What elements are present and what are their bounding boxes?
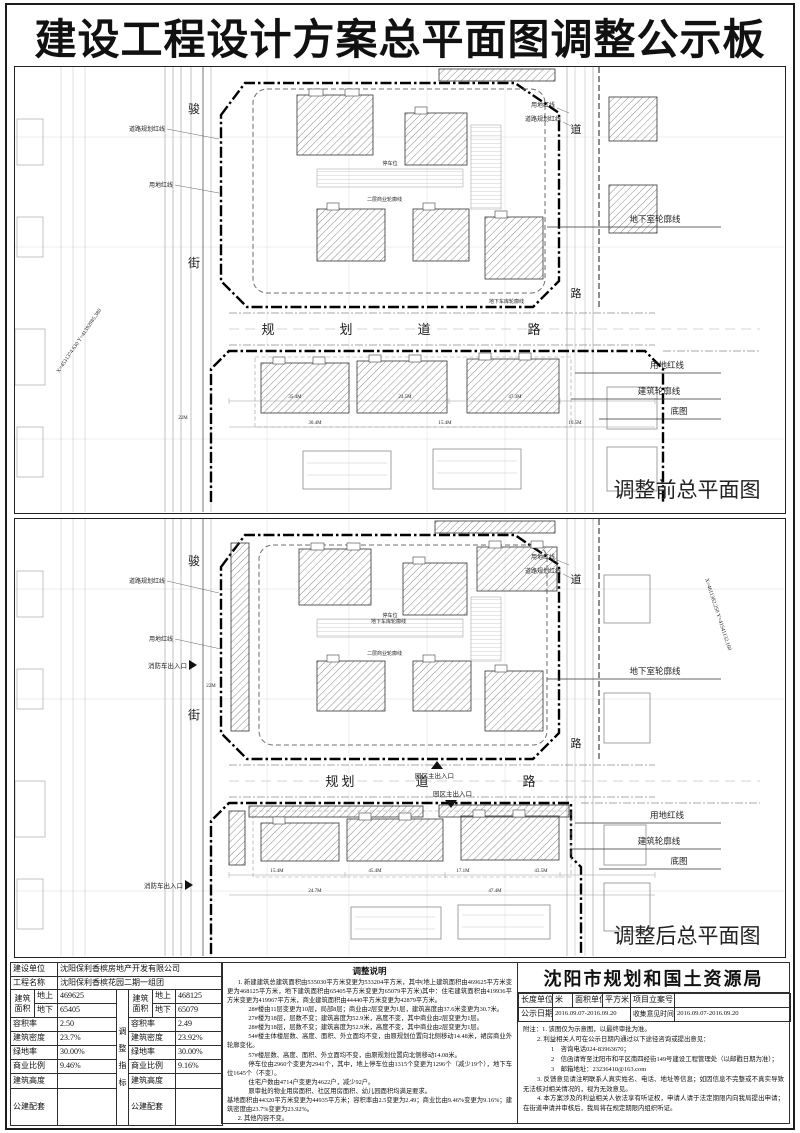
bureau-block: 沈阳市规划和国土资源局 长度单位 米 面积单位 平方米 项目立案号 公示日期 2… <box>517 962 790 1124</box>
orig-public-value <box>58 1089 117 1126</box>
basemap-callout: 底图 <box>670 406 687 416</box>
adjustment-line: 54#楼主体楼层数、高度、面积、外立面均不变，由原规划位置向北侧移动14.48米… <box>227 1032 512 1050</box>
adj-height-value <box>176 1074 223 1089</box>
svg-text:15.4M: 15.4M <box>438 421 452 426</box>
fire-exit-arrow-icon <box>189 660 197 670</box>
adj-biz-label: 商业比例 <box>129 1060 176 1074</box>
adj-density-value: 23.92% <box>176 1032 223 1046</box>
land-redline-label: 用地红线 <box>149 635 173 643</box>
adjustment-line: 27#楼为18层，层数不变；建筑高度为52.9米，高度不变，其中商业由2层变更为… <box>227 1014 512 1023</box>
basemap-callout: 底图 <box>670 856 687 866</box>
legend-callouts: 地下室轮廓线 用地红线 建筑轮廓线 底图 <box>547 214 721 419</box>
orig-density-value: 23.7% <box>58 1032 117 1046</box>
collect-date-label: 收集意见时间 <box>631 1008 675 1022</box>
area-unit-label: 面积单位 <box>573 994 603 1008</box>
street-name-left-top: 骏 <box>188 554 200 568</box>
existing-building-detail-lines <box>307 461 517 475</box>
svg-text:22M: 22M <box>206 684 216 689</box>
svg-text:10.5M: 10.5M <box>568 421 582 426</box>
fire-exit-label: 消防车出入口 <box>144 881 183 890</box>
adj-area-above-value: 468125 <box>176 990 223 1004</box>
site-plan-after: 骏 街 道 路 规 划 道 路 <box>15 519 784 956</box>
west-neighbor-buildings <box>15 571 45 929</box>
redline-callout-left: 道路规划红线 用地红线 <box>129 125 219 193</box>
parking-label: 停车位 <box>382 612 397 619</box>
svg-text:15.4M: 15.4M <box>270 869 284 874</box>
site-plan-before: 骏 街 道 路 规 划 道 路 <box>15 67 784 512</box>
street-name-right-bottom: 路 <box>571 287 582 300</box>
road-redlines <box>229 765 760 803</box>
adj-area-label: 建筑 面积 <box>129 990 153 1018</box>
road-name-char: 道 <box>417 322 430 337</box>
orig-far-value: 2.50 <box>58 1018 117 1032</box>
owner-label: 建设单位 <box>11 963 58 977</box>
orig-area-below-value: 65405 <box>58 1004 117 1018</box>
basement-outline-callout: 地下室轮廓线 <box>629 666 681 676</box>
svg-text:30.4M: 30.4M <box>308 421 322 426</box>
redline-callout-topright: 用地红线 道路规划红线 <box>525 101 577 129</box>
map-caption-before: 调整前总平面图 <box>614 478 761 502</box>
owner-value: 沈阳保利香槟房地产开发有限公司 <box>58 963 223 977</box>
length-unit-value: 米 <box>553 994 573 1008</box>
road-redline-label: 道路规划红线 <box>525 567 561 575</box>
orig-below-label: 地下 <box>35 1004 58 1018</box>
survey-grid <box>15 67 784 512</box>
street-name-right-top: 道 <box>571 572 582 586</box>
adj-density-label: 建筑密度 <box>129 1032 176 1046</box>
svg-text:35.4M: 35.4M <box>288 395 302 400</box>
adj-biz-value: 9.16% <box>176 1060 223 1074</box>
adjustment-line: 28#楼由11层变更为10层，局部8层；商业由2层变更为1层，建筑高度由37.6… <box>227 1005 512 1014</box>
basement-outline-callout: 地下室轮廓线 <box>629 214 681 224</box>
info-section: 建设单位 沈阳保利香槟房地产开发有限公司 工程名称 沈阳保利香槟花园二期一组团 … <box>10 962 790 1124</box>
orig-public-label: 公建配套 <box>11 1089 58 1126</box>
project-value: 沈阳保利香槟花园二期一组团 <box>58 977 223 990</box>
garage-outline-label: 地下车库轮廓线 <box>489 298 524 305</box>
dimension-lines <box>229 872 655 895</box>
road-name-char: 划 <box>341 774 354 789</box>
orig-area-label: 建筑 面积 <box>11 990 35 1018</box>
project-label: 工程名称 <box>11 977 58 990</box>
orig-area-above-value: 469625 <box>58 990 117 1004</box>
road-name-char: 路 <box>527 322 540 337</box>
svg-text:17.1M: 17.1M <box>456 869 470 874</box>
road-redline-label: 道路规划红线 <box>129 125 165 133</box>
road-name-char: 路 <box>522 774 535 789</box>
west-street-lines <box>61 67 211 512</box>
adjustment-notes-block: 调整说明 1. 新建建筑总建筑面积由535030平方米变更为533204平方米，… <box>221 962 518 1124</box>
bureau-notes: 附注：1. 该图仅为示意图，以最终审批为准。 2. 利益相关人可在公示日期内通过… <box>518 1022 789 1117</box>
orig-height-value <box>58 1074 117 1089</box>
adj-public-label: 公建配套 <box>129 1089 176 1126</box>
adjust-indicator-divider: 调 整 指 标 <box>117 990 129 1126</box>
legend-callouts: 地下室轮廓线 用地红线 建筑轮廓线 底图 <box>547 666 721 869</box>
adj-green-label: 绿地率 <box>129 1046 176 1060</box>
bureau-note-line: 4. 本方案涉及的利益相关人依法享有听证权，申请人请于法定期限内向我局提出申请；… <box>523 1094 784 1114</box>
bureau-note-line: 3. 反馈意见请注明联系人真实姓名、电话、地址等信息；如因信息不完整或不真实导致… <box>523 1075 784 1095</box>
land-redline-callout: 用地红线 <box>650 360 685 370</box>
length-unit-label: 长度单位 <box>519 994 553 1008</box>
road-redline-label: 道路规划红线 <box>525 115 561 123</box>
adj-public-value <box>176 1089 223 1126</box>
main-entrance-label: 园区主出入口 <box>433 789 472 798</box>
road-name-char: 规 <box>325 774 338 789</box>
bureau-meta-table: 长度单位 米 面积单位 平方米 项目立案号 公示日期 2016.09.07-20… <box>518 993 791 1022</box>
road-name-char: 规 <box>261 322 274 337</box>
bureau-name: 沈阳市规划和国土资源局 <box>518 963 789 993</box>
bureau-note-line: 3 邮箱地址：23236410@163.com <box>523 1065 784 1075</box>
adjustment-line: 28#楼为18层，层数不变；建筑高度为52.9米，高度不变，其中商业由2层变更为… <box>227 1023 512 1032</box>
orig-above-label: 地上 <box>35 990 58 1004</box>
orig-height-label: 建筑高度 <box>11 1074 58 1089</box>
svg-text:43.5M: 43.5M <box>534 869 548 874</box>
orig-density-label: 建筑密度 <box>11 1032 58 1046</box>
bureau-note-line: 1 咨询电话024-83963670； <box>523 1045 784 1055</box>
street-name-left-top: 骏 <box>188 102 200 116</box>
coordinate-label: X=4531374.630 Y=41392985.380 <box>56 308 104 374</box>
adjustment-line: 2. 其他内容不变。 <box>227 1114 512 1123</box>
biz-outline-label: 二层商业轮廓线 <box>367 650 402 657</box>
publish-date-value: 2016.09.07-2016.09.20 <box>553 1008 631 1022</box>
street-name-right-bottom: 路 <box>571 737 582 750</box>
indicator-table: 建设单位 沈阳保利香槟房地产开发有限公司 工程名称 沈阳保利香槟花园二期一组团 … <box>10 962 223 1126</box>
bureau-note-line: 2. 利益相关人可在公示日期内通过以下途径咨询或提出意见： <box>523 1035 784 1045</box>
orig-far-label: 容积率 <box>11 1018 58 1032</box>
street-name-left-bottom: 街 <box>188 256 200 270</box>
notice-board-sheet: 建设工程设计方案总平面图调整公示板 <box>0 0 800 1133</box>
bureau-note-line: 附注：1. 该图仅为示意图，以最终审批为准。 <box>523 1025 784 1035</box>
street-name-left-bottom: 街 <box>188 708 200 722</box>
case-number-value <box>675 994 791 1008</box>
adjustment-line: 住宅户数由4714户变更为4622户，减少92户。 <box>227 1078 512 1087</box>
fire-exit-arrow-icon <box>185 880 193 890</box>
road-redlines <box>229 313 760 351</box>
parking-label: 停车位 <box>382 160 397 167</box>
adj-below-label: 地下 <box>153 1004 176 1018</box>
map-panel-before: 骏 街 道 路 规 划 道 路 <box>14 66 786 514</box>
street-name-right-top: 道 <box>571 122 582 136</box>
orig-biz-value: 9.46% <box>58 1060 117 1074</box>
fire-exit-label: 消防车出入口 <box>148 661 187 670</box>
adjustment-line: 基地面积由44320平方米变更为44935平方米；容积率由2.5变更为2.49；… <box>227 1096 512 1114</box>
adj-far-label: 容积率 <box>129 1018 176 1032</box>
map-panel-after: 骏 街 道 路 规 划 道 路 <box>14 518 786 958</box>
adj-height-label: 建筑高度 <box>129 1074 176 1089</box>
svg-text:24.5M: 24.5M <box>398 395 412 400</box>
land-redline-label: 用地红线 <box>149 181 173 189</box>
biz-outline-label: 二层商业轮廓线 <box>367 196 402 203</box>
land-redline-label: 用地红线 <box>531 101 555 109</box>
collect-date-value: 2016.09.07-2016.09.20 <box>675 1008 791 1022</box>
road-name-char: 划 <box>339 322 352 337</box>
svg-text:22M: 22M <box>178 416 188 421</box>
svg-text:47.3M: 47.3M <box>508 395 522 400</box>
case-number-label: 项目立案号 <box>631 994 675 1008</box>
existing-building-detail-lines <box>355 915 544 929</box>
road-redline-label: 道路规划红线 <box>129 577 165 585</box>
area-unit-value: 平方米 <box>603 994 631 1008</box>
adjustment-line: 1. 新建建筑总建筑面积由535030平方米变更为533204平方米，其中(地上… <box>227 978 512 1005</box>
west-neighbor-buildings <box>15 119 45 477</box>
adj-green-value: 30.00% <box>176 1046 223 1060</box>
svg-text:47.4M: 47.4M <box>488 889 502 894</box>
adj-area-below-value: 65079 <box>176 1004 223 1018</box>
adjustment-line: 停车位由2960个变更为2941个，其中，地上停车位由1315个变更为1296个… <box>227 1060 512 1078</box>
orig-green-value: 30.00% <box>58 1046 117 1060</box>
adj-above-label: 地上 <box>153 990 176 1004</box>
page-title: 建设工程设计方案总平面图调整公示板 <box>0 6 800 67</box>
orig-green-label: 绿地率 <box>11 1046 58 1060</box>
adjustment-line: 57#楼层数、高度、面积、外立面均不变，由原规划位置向北侧移动14.08米。 <box>227 1051 512 1060</box>
adjustment-notes-title: 调整说明 <box>227 965 512 977</box>
adjustment-line: 原审批的物业用房面积、社区用房面积、幼儿园面积均满足要求。 <box>227 1087 512 1096</box>
land-redline-callout: 用地红线 <box>650 810 685 820</box>
building-outline-callout: 建筑轮廓线 <box>638 836 681 846</box>
redline-callout-left: 道路规划红线 用地红线 <box>129 577 221 649</box>
bureau-note-line: 2 信函请寄至沈阳市和平区南四经街149号建设工程管理处（以邮戳日期为准）； <box>523 1055 784 1065</box>
svg-text:24.7M: 24.7M <box>308 889 322 894</box>
publish-date-label: 公示日期 <box>519 1008 553 1022</box>
adj-far-value: 2.49 <box>176 1018 223 1032</box>
map-caption-after: 调整后总平面图 <box>614 924 761 948</box>
svg-text:45.4M: 45.4M <box>368 869 382 874</box>
orig-biz-label: 商业比例 <box>11 1060 58 1074</box>
main-entrance-label: 园区主出入口 <box>415 771 454 780</box>
building-outline-callout: 建筑轮廓线 <box>638 386 681 396</box>
land-redline-label: 用地红线 <box>531 553 555 561</box>
garage-outline-label: 地下车库轮廓线 <box>371 618 406 625</box>
